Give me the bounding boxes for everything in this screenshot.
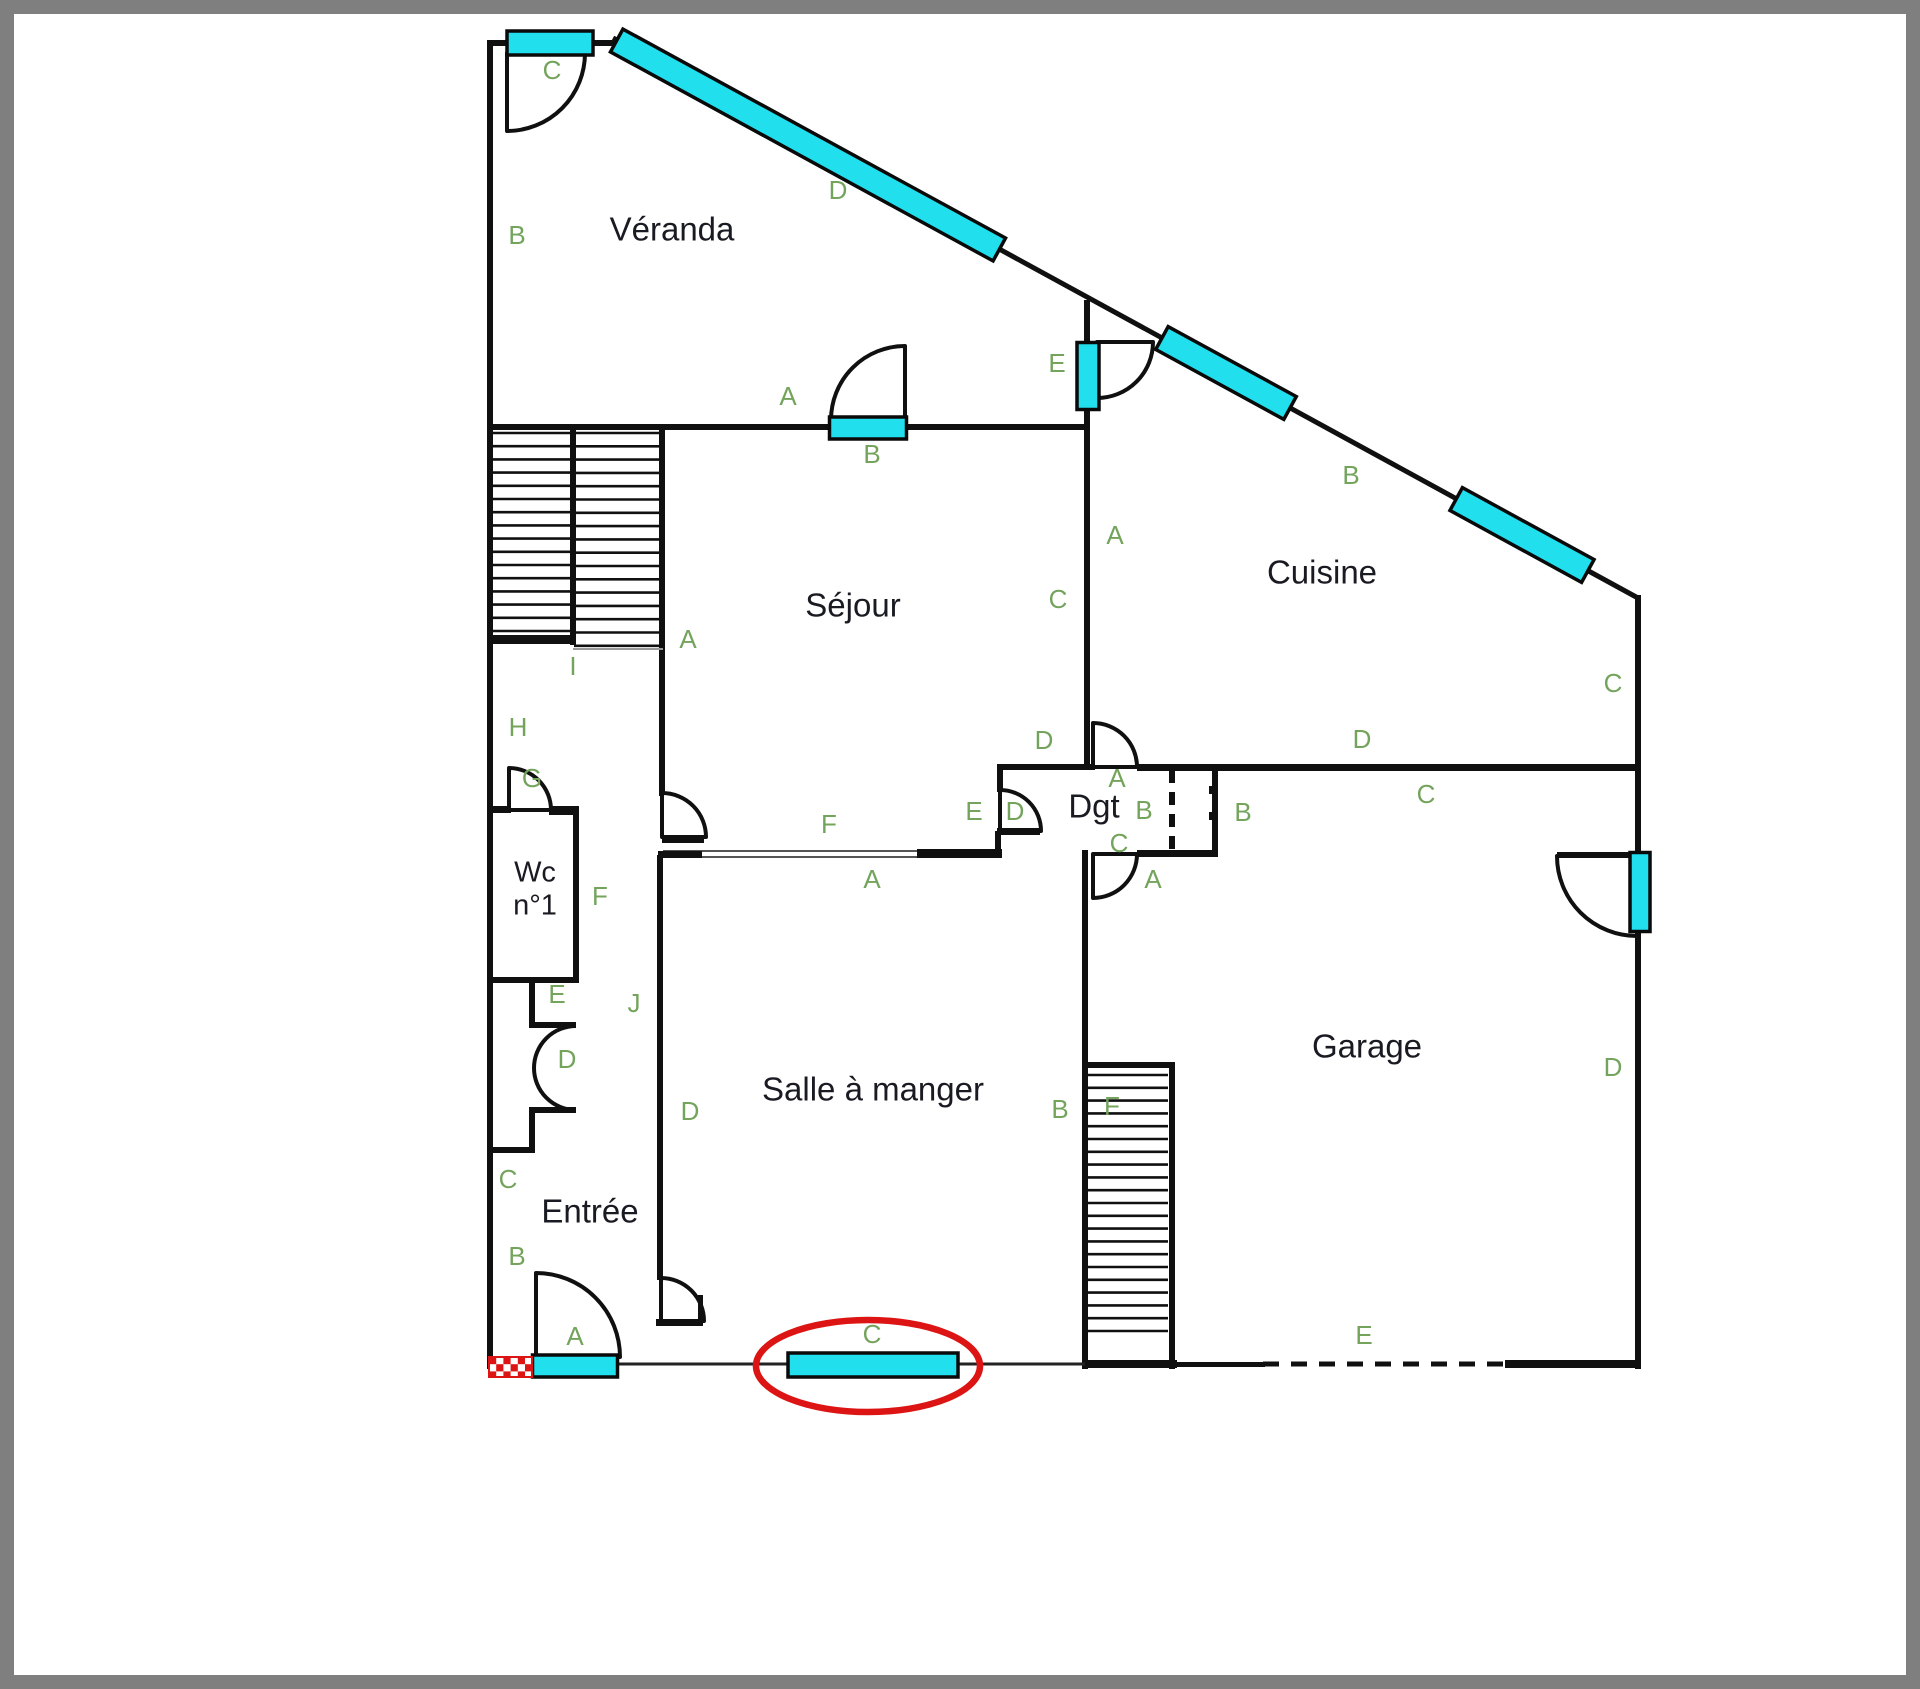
wall-stub <box>658 851 702 858</box>
window-e-cuisine <box>1077 343 1099 410</box>
wall <box>1137 850 1218 857</box>
letter-label-a: A <box>1108 763 1126 793</box>
window-c-top <box>507 31 593 55</box>
wall-stub <box>662 836 704 843</box>
wall <box>1175 1362 1265 1367</box>
room-label-entr-e: Entrée <box>541 1193 638 1230</box>
letter-label-a: A <box>779 381 797 411</box>
letter-label-d: D <box>681 1096 700 1126</box>
room-label-dgt: Dgt <box>1068 788 1119 825</box>
letter-label-c: C <box>1604 668 1623 698</box>
wall <box>573 810 579 983</box>
room-label-n-1: n°1 <box>513 890 557 922</box>
letter-label-g: G <box>522 763 542 793</box>
letter-label-d: D <box>558 1044 577 1074</box>
window-a-entree <box>533 1355 618 1377</box>
letter-label-j: J <box>628 988 641 1018</box>
letter-label-d: D <box>1353 724 1372 754</box>
letter-label-i: I <box>569 651 576 681</box>
wall <box>1082 850 1088 1369</box>
letter-label-e: E <box>1048 348 1065 378</box>
letter-label-e: E <box>548 979 565 1009</box>
room-label-wc: Wc <box>514 857 556 889</box>
letter-label-b: B <box>508 220 525 250</box>
wall <box>917 849 1002 858</box>
letter-label-c: C <box>499 1164 518 1194</box>
room-label-garage: Garage <box>1312 1028 1422 1065</box>
wall-stub <box>995 831 1001 856</box>
letter-label-d: D <box>1604 1052 1623 1082</box>
wall <box>997 764 1095 770</box>
letter-label-a: A <box>1106 520 1124 550</box>
entry-checker-cell <box>518 1357 525 1364</box>
letter-label-b: B <box>863 439 880 469</box>
letter-label-b: B <box>1051 1094 1068 1124</box>
entry-checker-cell <box>503 1357 510 1364</box>
letter-label-d: D <box>1035 725 1054 755</box>
wall <box>1169 1062 1175 1369</box>
wall <box>487 424 1090 430</box>
entry-checker-cell <box>489 1357 496 1364</box>
letter-label-c: C <box>1110 828 1129 858</box>
room-label-salle-manger: Salle à manger <box>762 1071 984 1108</box>
window-garage-door <box>1630 853 1650 932</box>
wall <box>1505 1360 1641 1368</box>
entry-checker-cell <box>525 1364 532 1371</box>
wall <box>657 855 663 1280</box>
wall <box>529 1113 535 1148</box>
letter-label-c: C <box>543 55 562 85</box>
letter-label-d: D <box>829 175 848 205</box>
wall <box>1082 1360 1177 1368</box>
wall <box>1085 1062 1175 1068</box>
wall <box>1209 786 1216 794</box>
entry-checker-cell <box>511 1364 518 1371</box>
wall <box>659 424 665 796</box>
wall <box>529 983 535 1022</box>
letter-label-c: C <box>863 1319 882 1349</box>
wall <box>487 40 493 1369</box>
window-b-sejour <box>830 417 907 439</box>
room-label-v-randa: Véranda <box>610 211 735 248</box>
floorplan-page: VérandaSéjourCuisineDgtWcn°1Salle à mang… <box>0 0 1920 1689</box>
letter-label-c: C <box>1049 584 1068 614</box>
letter-label-a: A <box>679 624 697 654</box>
letter-label-a: A <box>863 864 881 894</box>
entry-checker-cell <box>496 1364 503 1371</box>
wall <box>487 1147 535 1153</box>
room-label-cuisine: Cuisine <box>1267 554 1377 591</box>
letter-label-b: B <box>1135 795 1152 825</box>
letter-label-c: C <box>1417 779 1436 809</box>
letter-label-a: A <box>1144 864 1162 894</box>
wall <box>1635 595 1641 1369</box>
letter-label-f: F <box>821 809 837 839</box>
letter-label-a: A <box>566 1321 584 1351</box>
room-label-s-jour: Séjour <box>805 587 900 624</box>
wall-stub <box>997 828 1040 835</box>
letter-label-f: F <box>592 881 608 911</box>
letter-label-f: F <box>1104 1091 1120 1121</box>
entry-checker-cell <box>503 1371 510 1377</box>
wall-stub <box>698 1295 703 1323</box>
floor-plan-image: VérandaSéjourCuisineDgtWcn°1Salle à mang… <box>0 0 1920 1689</box>
entry-checker-cell <box>518 1371 525 1377</box>
wall <box>1212 768 1218 855</box>
letter-label-b: B <box>1234 797 1251 827</box>
wall-stub <box>656 1319 703 1326</box>
wall <box>1209 812 1216 820</box>
window-c-salle <box>788 1353 958 1377</box>
letter-label-b: B <box>508 1241 525 1271</box>
letter-label-e: E <box>1355 1320 1372 1350</box>
letter-label-e: E <box>965 796 982 826</box>
letter-label-d: D <box>1006 796 1025 826</box>
letter-label-b: B <box>1342 460 1359 490</box>
wall-stub <box>1557 852 1640 858</box>
wall <box>487 635 573 644</box>
letter-label-h: H <box>509 712 528 742</box>
entry-checker-cell <box>489 1371 496 1377</box>
canvas-background <box>0 0 1920 1689</box>
